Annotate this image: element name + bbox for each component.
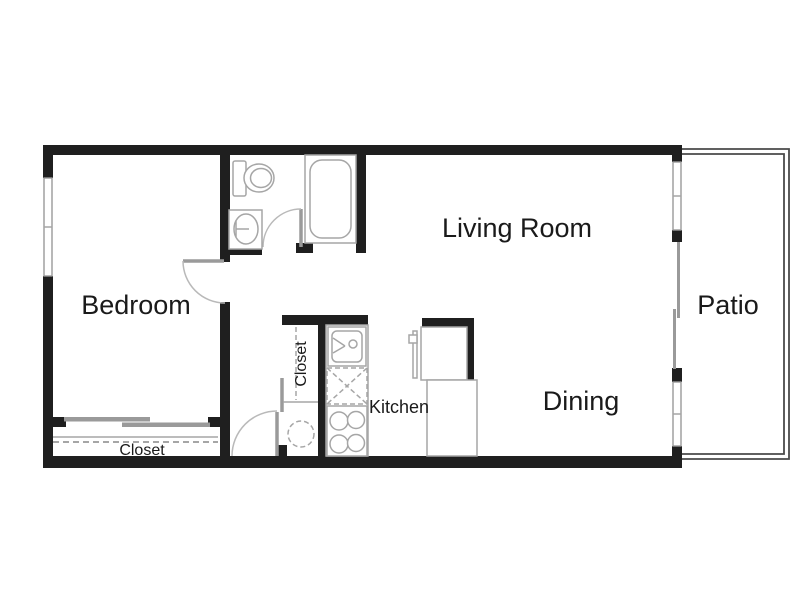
closet-sliding-door-1 (64, 417, 150, 422)
kitchen (326, 325, 477, 456)
sliding-glass-door-panel-2 (673, 309, 676, 369)
labels: Bedroom Living Room Dining Patio Kitchen… (81, 213, 759, 459)
bathroom-door-swing (263, 209, 301, 247)
bedroom-label: Bedroom (81, 290, 191, 320)
burner-1 (330, 412, 348, 430)
wall-living-right-stub1 (672, 145, 682, 162)
kitchen-sink-drain (349, 340, 357, 348)
burner-2 (348, 412, 365, 429)
hall-closet-label: Closet (293, 341, 310, 387)
wall-closet-stub-right (208, 417, 230, 427)
wall-living-right-stub2 (672, 230, 682, 242)
wall-left-upper (43, 145, 53, 178)
burner-3 (330, 435, 348, 453)
wall-living-right-stub4 (672, 446, 682, 468)
dining-counter (427, 380, 477, 456)
bathtub (310, 160, 351, 238)
sliding-glass-door-panel-1 (677, 242, 680, 318)
floor-plan: Bedroom Living Room Dining Patio Kitchen… (0, 0, 800, 600)
floor-plan-canvas: Bedroom Living Room Dining Patio Kitchen… (0, 0, 800, 600)
burner-4 (348, 435, 365, 452)
wall-bathroom-right (356, 150, 366, 253)
wall-bedroom-right-lower (220, 302, 230, 468)
toilet-bowl-inner (251, 169, 272, 188)
water-heater (288, 421, 314, 447)
kitchen-label: Kitchen (369, 397, 429, 417)
refrigerator (421, 327, 467, 380)
bathroom (229, 155, 356, 249)
living-room-label: Living Room (442, 213, 592, 243)
entry-door-swing (232, 411, 277, 456)
refrigerator-handle (409, 335, 417, 343)
bedroom-closet (53, 417, 218, 442)
closet-sliding-door-2 (122, 423, 210, 428)
wall-living-right-stub3 (672, 368, 682, 382)
kitchen-sink-basin (332, 331, 362, 362)
wall-bathroom-door-stub (296, 243, 313, 253)
patio-label: Patio (697, 290, 759, 320)
bedroom-closet-label: Closet (119, 442, 165, 459)
wall-left-lower (43, 276, 53, 468)
dining-label: Dining (543, 386, 620, 416)
